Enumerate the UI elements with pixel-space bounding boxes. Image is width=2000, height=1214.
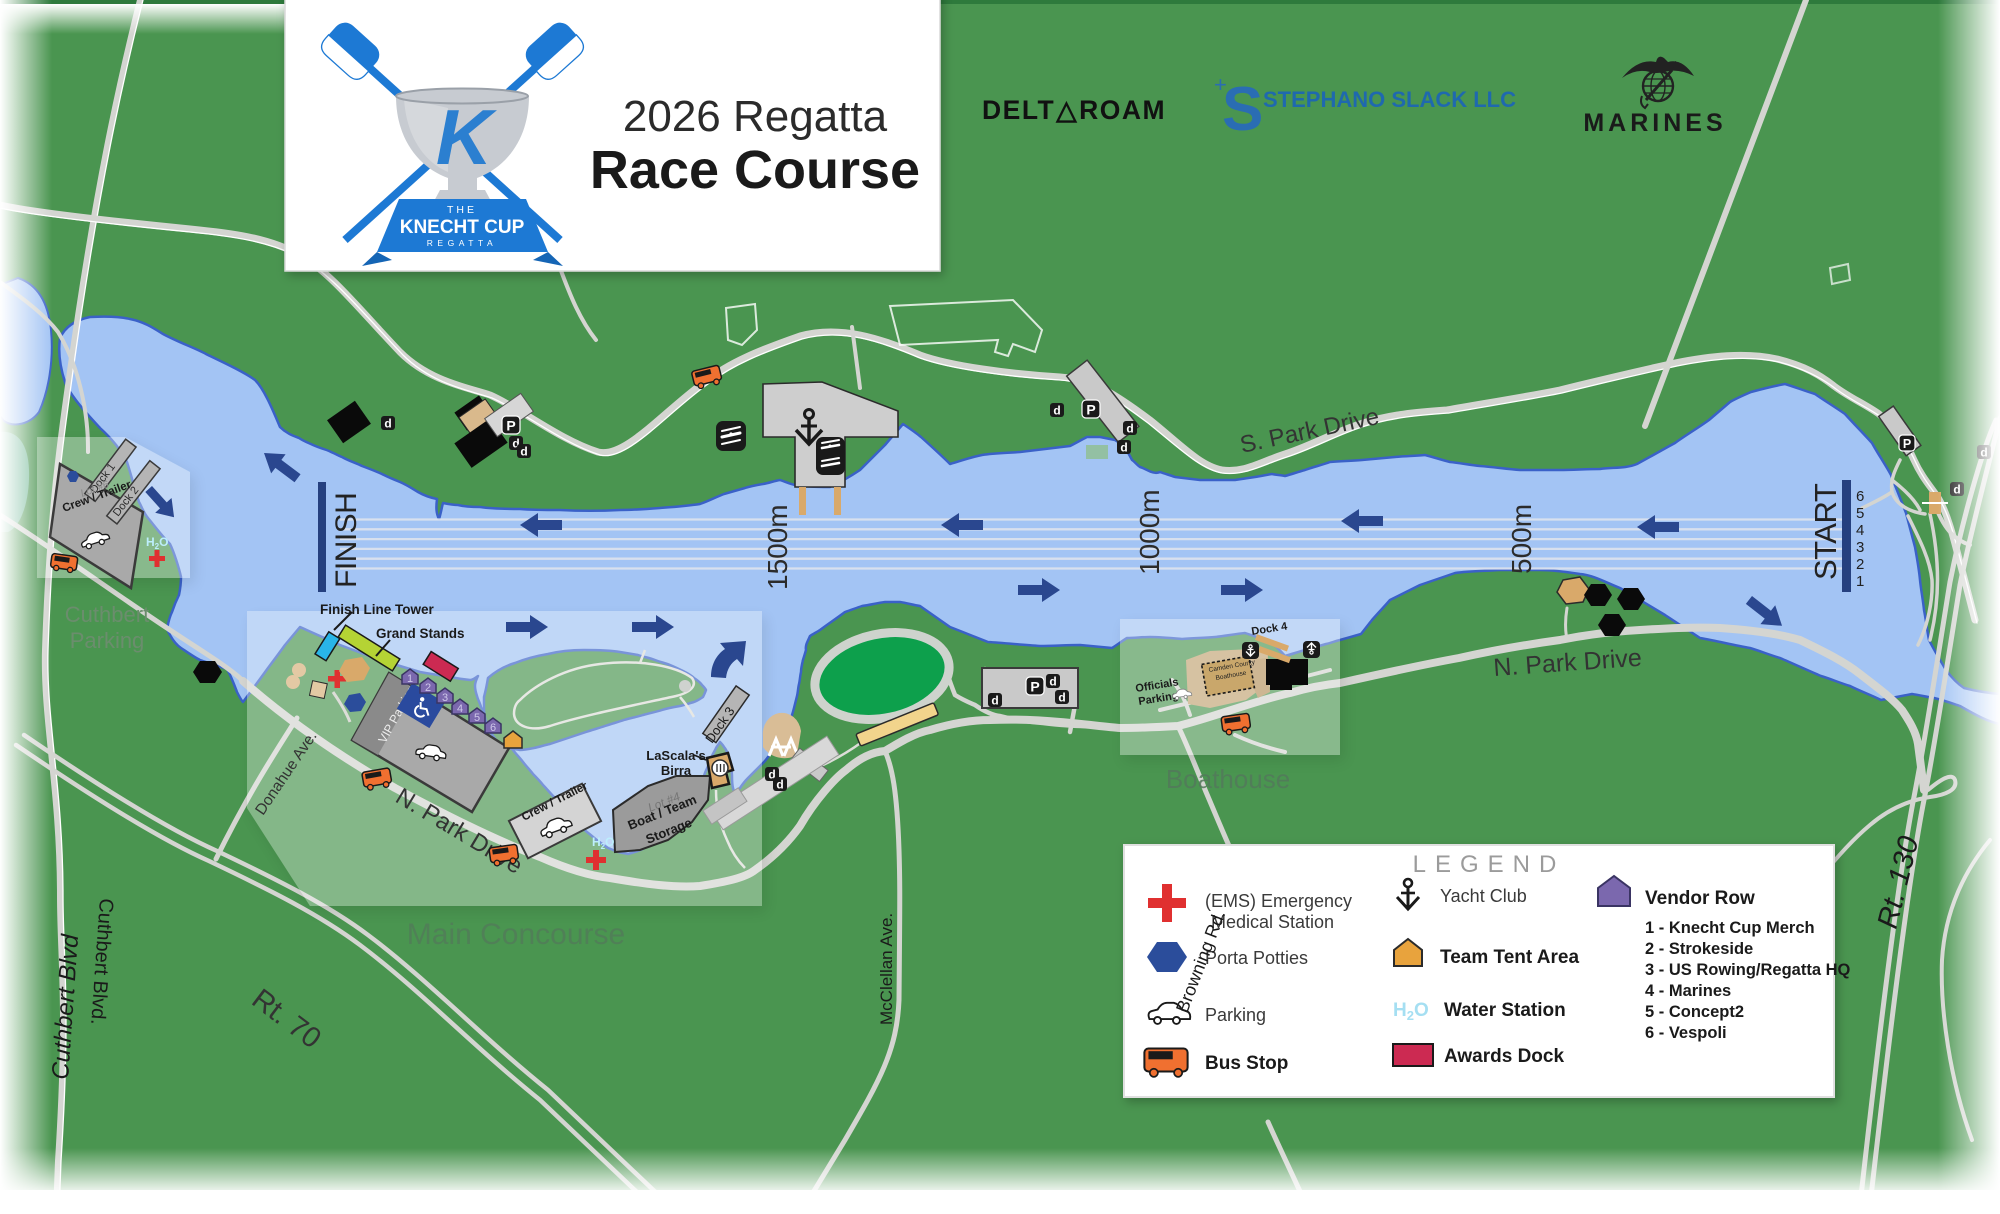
svg-text:P: P xyxy=(1030,679,1039,695)
svg-text:2: 2 xyxy=(425,682,431,694)
svg-text:Vendor Row: Vendor Row xyxy=(1645,888,1755,909)
svg-text:d: d xyxy=(520,445,527,459)
svg-text:Porta Potties: Porta Potties xyxy=(1205,948,1308,968)
svg-text:Boathouse: Boathouse xyxy=(1166,764,1290,794)
svg-text:KNECHT CUP: KNECHT CUP xyxy=(400,217,525,238)
svg-text:d: d xyxy=(1049,675,1056,689)
svg-text:6: 6 xyxy=(490,722,496,734)
svg-text:Main Concourse: Main Concourse xyxy=(407,918,625,951)
svg-text:3: 3 xyxy=(442,692,448,704)
svg-text:5: 5 xyxy=(474,712,480,724)
svg-text:+: + xyxy=(1214,72,1227,97)
svg-text:P: P xyxy=(1903,437,1911,451)
svg-text:2 - Strokeside: 2 - Strokeside xyxy=(1645,940,1753,958)
svg-text:P: P xyxy=(506,418,515,434)
svg-text:500m: 500m xyxy=(1506,504,1537,574)
svg-text:Finish Line Tower: Finish Line Tower xyxy=(320,602,435,617)
svg-text:Race Course: Race Course xyxy=(590,140,920,200)
svg-text:d: d xyxy=(1120,441,1127,455)
svg-text:Parking: Parking xyxy=(70,628,145,653)
svg-text:d: d xyxy=(384,417,391,431)
svg-text:Yacht Club: Yacht Club xyxy=(1440,886,1527,906)
svg-text:4: 4 xyxy=(457,703,463,715)
svg-text:Grand Stands: Grand Stands xyxy=(376,626,465,641)
svg-text:1000m: 1000m xyxy=(1134,489,1165,575)
svg-text:STEPHANO SLACK LLC: STEPHANO SLACK LLC xyxy=(1263,87,1516,112)
svg-text:DELT△ROAM: DELT△ROAM xyxy=(982,95,1166,125)
svg-text:d: d xyxy=(1053,404,1060,418)
svg-text:P: P xyxy=(1086,402,1095,418)
svg-text:THE: THE xyxy=(447,204,477,216)
svg-text:d: d xyxy=(776,778,783,792)
svg-text:LEGEND: LEGEND xyxy=(1413,851,1566,878)
svg-text:2026 Regatta: 2026 Regatta xyxy=(623,92,888,141)
svg-text:1500m: 1500m xyxy=(762,504,793,590)
svg-text:S: S xyxy=(1222,75,1263,144)
svg-text:K: K xyxy=(436,93,498,181)
svg-text:Birra: Birra xyxy=(661,763,692,778)
svg-text:2: 2 xyxy=(1856,556,1864,573)
svg-text:5 - Concept2: 5 - Concept2 xyxy=(1645,1003,1744,1021)
svg-text:Team Tent Area: Team Tent Area xyxy=(1440,947,1579,968)
svg-text:(EMS) Emergency: (EMS) Emergency xyxy=(1205,891,1352,911)
svg-text:Cuthbert: Cuthbert xyxy=(65,602,149,627)
svg-text:START: START xyxy=(1808,483,1843,580)
svg-text:1 - Knecht Cup Merch: 1 - Knecht Cup Merch xyxy=(1645,919,1815,937)
svg-text:1: 1 xyxy=(407,673,413,685)
svg-text:d: d xyxy=(1126,422,1133,436)
svg-text:5: 5 xyxy=(1856,505,1864,522)
svg-text:MARINES: MARINES xyxy=(1583,109,1726,137)
svg-text:1: 1 xyxy=(1856,573,1864,590)
svg-text:Awards Dock: Awards Dock xyxy=(1444,1046,1564,1067)
svg-text:3: 3 xyxy=(1856,539,1864,556)
svg-text:6 - Vespoli: 6 - Vespoli xyxy=(1645,1024,1727,1042)
svg-text:Water Station: Water Station xyxy=(1444,1000,1566,1021)
svg-text:6: 6 xyxy=(1856,488,1864,505)
svg-text:4: 4 xyxy=(1856,522,1864,539)
svg-text:d: d xyxy=(1058,691,1065,705)
svg-text:4 - Marines: 4 - Marines xyxy=(1645,982,1731,1000)
svg-text:d: d xyxy=(991,694,998,708)
svg-text:REGATTA: REGATTA xyxy=(427,238,497,248)
svg-text:Bus Stop: Bus Stop xyxy=(1205,1053,1288,1074)
svg-text:Medical Station: Medical Station xyxy=(1211,912,1334,932)
svg-text:Parking: Parking xyxy=(1205,1005,1266,1025)
svg-text:FINISH: FINISH xyxy=(330,493,363,588)
svg-text:3 - US Rowing/Regatta HQ: 3 - US Rowing/Regatta HQ xyxy=(1645,961,1851,979)
svg-text:McClellan Ave.: McClellan Ave. xyxy=(877,913,896,1025)
